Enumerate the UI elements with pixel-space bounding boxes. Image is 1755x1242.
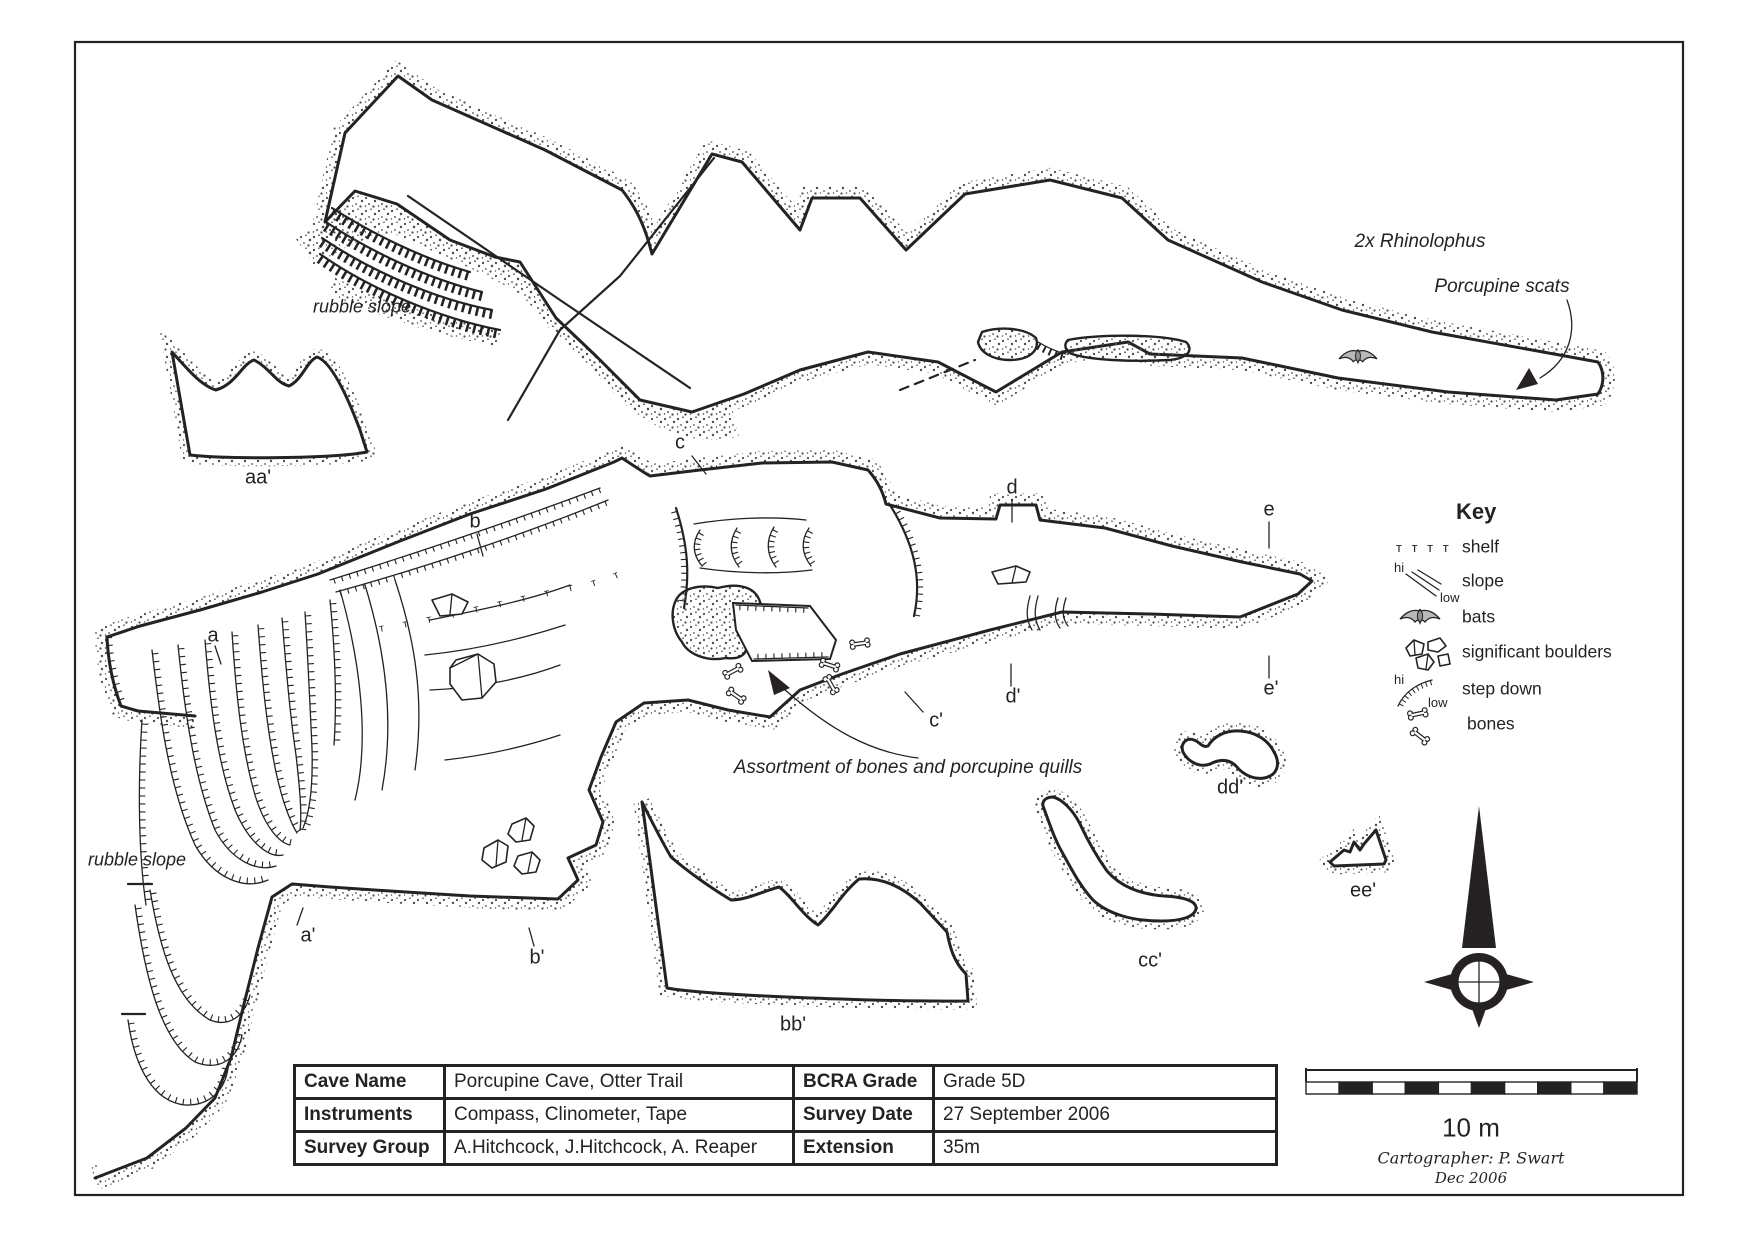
step-down-icon: hi low (1394, 672, 1448, 710)
survey-info-table: Cave Name Porcupine Cave, Otter Trail BC… (293, 1064, 1278, 1166)
cave-name-label: Cave Name (295, 1066, 445, 1099)
key-symbols: ᴛ ᴛ ᴛ ᴛ hi low hi low (1394, 540, 1460, 746)
table-row: Instruments Compass, Clinometer, Tape Su… (295, 1099, 1277, 1132)
upper-island (978, 329, 1037, 360)
key-item-step-down: step down (1462, 679, 1542, 700)
svg-text:hi: hi (1394, 560, 1404, 575)
section-label-a-prime: a' (301, 925, 316, 948)
section-label-aa: aa' (245, 467, 271, 490)
key-item-bats: bats (1462, 607, 1495, 628)
svg-text:hi: hi (1394, 672, 1404, 687)
rubble-slope-label-upper: rubble slope (313, 297, 411, 318)
bcra-grade-value: Grade 5D (934, 1066, 1277, 1099)
extension-label: Extension (794, 1132, 934, 1165)
section-label-a: a (207, 625, 218, 648)
section-label-bb: bb' (780, 1014, 806, 1037)
key-item-significant-boulders: significant boulders (1462, 642, 1612, 663)
shelf-icon: ᴛ ᴛ ᴛ ᴛ (1396, 540, 1452, 555)
north-arrow (1424, 806, 1534, 1028)
boulders-icon (1406, 638, 1450, 670)
survey-date-label: Survey Date (794, 1099, 934, 1132)
scale-label: 10 m (1442, 1113, 1500, 1144)
extension-value: 35m (934, 1132, 1277, 1165)
key-title: Key (1456, 499, 1496, 525)
instruments-label: Instruments (295, 1099, 445, 1132)
instruments-value: Compass, Clinometer, Tape (445, 1099, 794, 1132)
porcupine-scats-note: Porcupine scats (1434, 276, 1569, 298)
survey-date-value: 27 September 2006 (934, 1099, 1277, 1132)
section-label-ee: ee' (1350, 880, 1376, 903)
slope-icon: hi low (1394, 560, 1460, 605)
scale-bar (1306, 1068, 1637, 1094)
section-label-cc: cc' (1138, 950, 1162, 973)
cartographer-credit: Cartographer: P. Swart (1377, 1149, 1564, 1168)
rubble-slope-label-lower: rubble slope (88, 850, 186, 871)
survey-group-value: A.Hitchcock, J.Hitchcock, A. Reaper (445, 1132, 794, 1165)
section-label-b: b (469, 511, 480, 534)
table-row: Cave Name Porcupine Cave, Otter Trail BC… (295, 1066, 1277, 1099)
section-label-b-prime: b' (530, 947, 545, 970)
cave-name-value: Porcupine Cave, Otter Trail (445, 1066, 794, 1099)
section-label-dd: dd' (1217, 777, 1243, 800)
survey-group-label: Survey Group (295, 1132, 445, 1165)
key-item-bones: bones (1467, 714, 1515, 735)
bones-icon (1407, 707, 1430, 746)
bcra-grade-label: BCRA Grade (794, 1066, 934, 1099)
section-label-c: c (675, 432, 685, 455)
cave-survey-map: ᴛ ᴛ ᴛ ᴛ ᴛ ᴛ ᴛ ᴛ ᴛ ᴛ ᴛ ᴛ ᴛ (0, 0, 1755, 1242)
section-label-d-prime: d' (1006, 686, 1021, 709)
key-item-slope: slope (1462, 571, 1504, 592)
tick-marks (139, 724, 151, 900)
svg-text:low: low (1428, 695, 1448, 710)
bat-icon (1400, 610, 1440, 624)
table-row: Survey Group A.Hitchcock, J.Hitchcock, A… (295, 1132, 1277, 1165)
section-label-e-prime: e' (1264, 678, 1279, 701)
svg-text:low: low (1440, 590, 1460, 605)
key-item-shelf: shelf (1462, 537, 1499, 558)
section-label-e: e (1263, 499, 1274, 522)
rhinolophus-note: 2x Rhinolophus (1355, 231, 1486, 253)
cartographer-date: Dec 2006 (1435, 1169, 1507, 1187)
section-label-c-prime: c' (929, 710, 943, 733)
bones-note: Assortment of bones and porcupine quills (734, 757, 1083, 779)
upper-island (1065, 336, 1189, 361)
section-label-d: d (1006, 477, 1017, 500)
